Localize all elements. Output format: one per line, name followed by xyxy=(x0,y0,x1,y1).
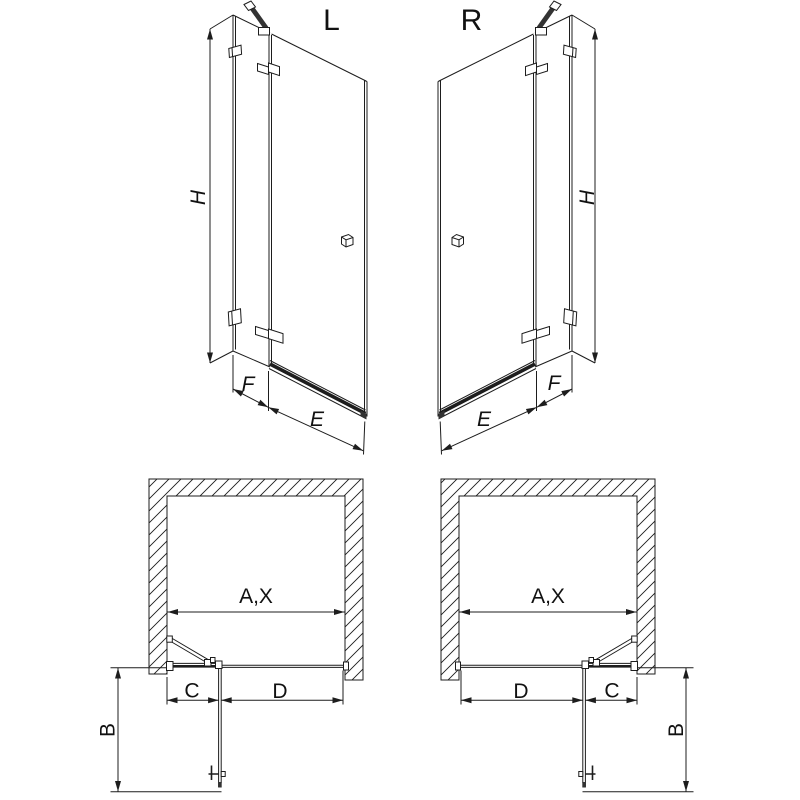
pivot-hinge-plan xyxy=(216,661,223,669)
hinge-post xyxy=(269,34,272,368)
height-dim-label-left: H xyxy=(187,189,210,205)
door-3d-view-right-mirrored xyxy=(438,1,595,455)
plan-view-graphics xyxy=(111,612,349,792)
swing-depth-label-left-plan: B xyxy=(97,723,120,737)
shower-door-technical-diagram: L R H H F E E F A,X A,X C D D C B B xyxy=(0,0,800,800)
door-handle-plan xyxy=(209,766,226,781)
door-dim-label-left-plan: D xyxy=(272,680,287,703)
swing-depth-dimension xyxy=(111,668,222,792)
diagram-labels: L R H H F E E F A,X A,X C D D C B B xyxy=(97,4,689,737)
right-plan-wall xyxy=(441,479,655,680)
opening-dim-label-left-plan: A,X xyxy=(239,585,273,608)
fixed-dim-label-right-3d: F xyxy=(548,372,562,395)
left-plan-wall xyxy=(149,479,363,680)
variant-label-right: R xyxy=(461,4,483,37)
wall-clamp-top xyxy=(229,45,242,57)
door-handle xyxy=(342,235,354,248)
open-door-plan xyxy=(218,669,222,788)
door-hinge-top xyxy=(258,63,280,76)
door-dim-label-left-3d: E xyxy=(310,408,325,431)
threshold-plan xyxy=(222,662,349,670)
plan-view-right-mirrored xyxy=(456,612,694,792)
diagram-canvas: L R H H F E E F A,X A,X C D D C B B xyxy=(0,0,800,800)
door-glass-panel xyxy=(269,34,367,419)
door-dim-label-right-3d: E xyxy=(477,408,492,431)
fixed-dim-label-right-plan: C xyxy=(604,680,619,703)
wall-strip xyxy=(210,15,233,363)
door-dim-label-right-plan: D xyxy=(513,680,528,703)
opening-dim-label-right-plan: A,X xyxy=(531,585,565,608)
door-3d-view-graphics xyxy=(210,1,367,455)
wall-clamp-bottom xyxy=(228,309,241,326)
support-strut-plan xyxy=(167,636,215,666)
variant-label-left: L xyxy=(323,4,340,37)
fixed-dim-label-left-3d: F xyxy=(242,373,256,396)
fixed-dim-label-left-plan: C xyxy=(184,680,199,703)
support-bar xyxy=(244,1,270,35)
swing-depth-label-right-plan: B xyxy=(665,723,688,737)
height-dim-label-right: H xyxy=(576,189,599,205)
